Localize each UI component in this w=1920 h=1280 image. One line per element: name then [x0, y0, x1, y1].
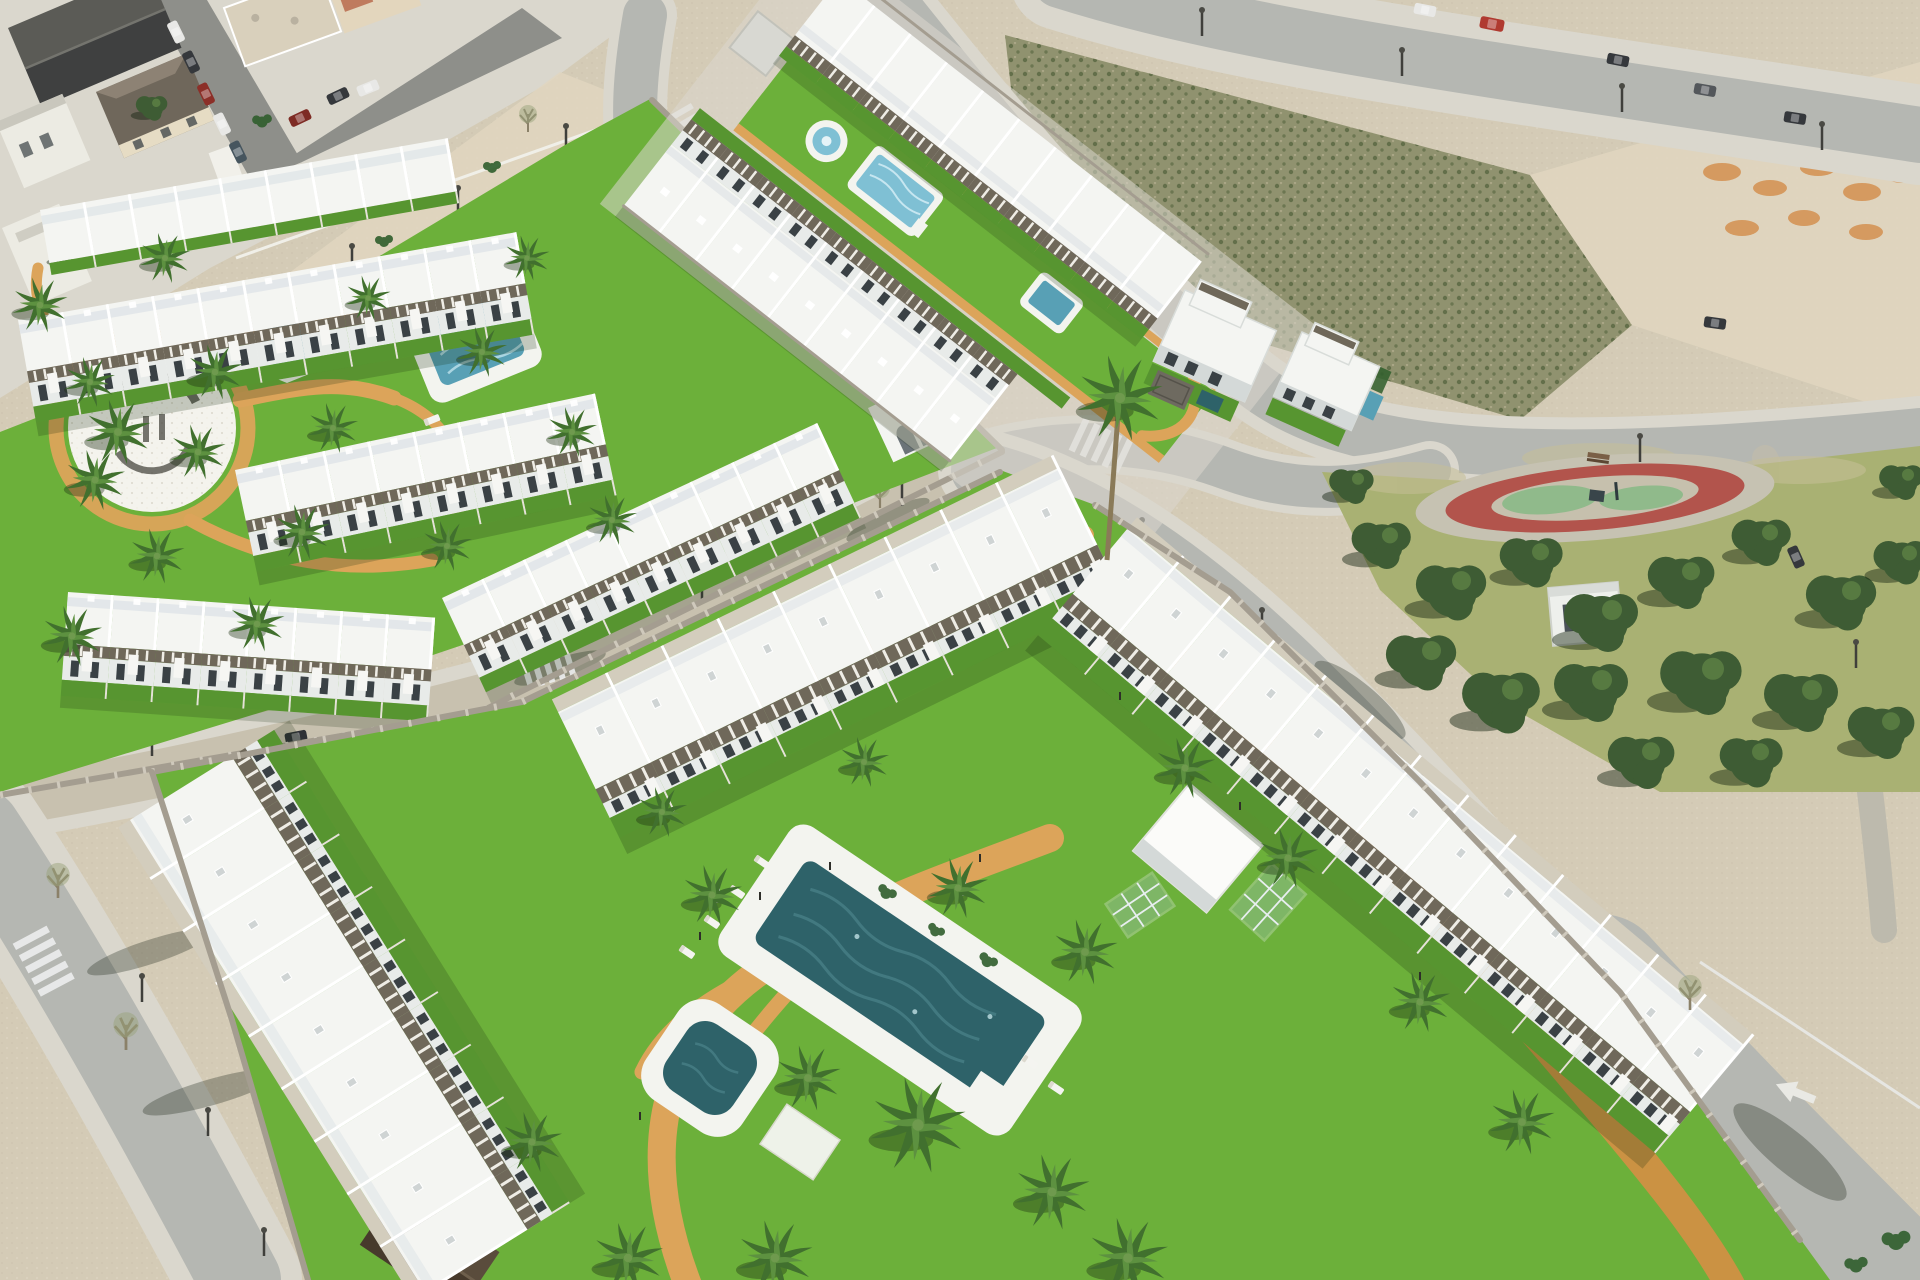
aerial-render: Aerial 3D visualisation of new-build res… [0, 0, 1920, 1280]
play-structure [1589, 489, 1605, 502]
scene-svg: Aerial 3D visualisation of new-build res… [0, 0, 1920, 1280]
